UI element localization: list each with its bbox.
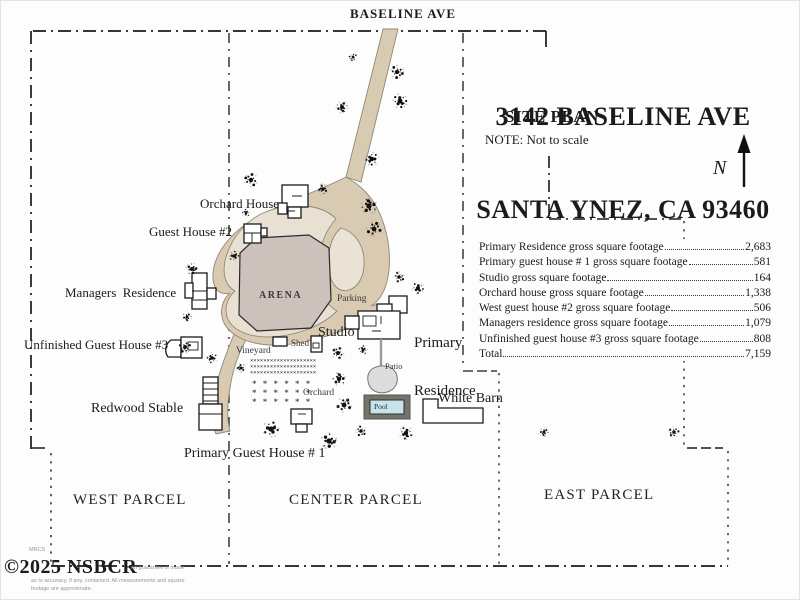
- studio-label: Studio: [318, 326, 355, 341]
- tree-icon: [336, 398, 352, 413]
- arena-area: [239, 235, 331, 331]
- dot-leader: [689, 254, 753, 265]
- row-value: 7,159: [745, 348, 771, 361]
- row-label: Studio gross square footage: [479, 272, 606, 285]
- table-row: Unfinished guest house #3 gross square f…: [479, 331, 771, 346]
- row-label: West guest house #2 gross square footage: [479, 302, 670, 315]
- row-value: 506: [754, 302, 771, 315]
- tree-icon: [244, 173, 257, 187]
- primary-residence-label: Primary Residence: [414, 303, 476, 431]
- watermark-brand: ©2025 NSBCR: [4, 557, 137, 578]
- tree-icon: [358, 345, 368, 354]
- street-label: BASELINE AVE: [350, 7, 456, 21]
- dot-leader: [669, 315, 744, 326]
- square-footage-table: Primary Residence gross square footage2,…: [479, 239, 771, 361]
- parking-label: Parking: [337, 295, 367, 305]
- row-label: Total: [479, 348, 502, 361]
- unfinished-guest-house-3-label: Unfinished Guest House #3: [24, 338, 168, 352]
- tree-icon: [349, 53, 357, 61]
- redwood-stable-label: Redwood Stable: [91, 402, 183, 417]
- table-row: Managers residence gross square footage1…: [479, 315, 771, 330]
- table-row: Studio gross square footage164: [479, 270, 771, 285]
- tree-icon: [236, 363, 246, 373]
- guest-house-2-label: Guest House #2: [149, 225, 232, 239]
- table-row: Primary guest house # 1 gross square foo…: [479, 254, 771, 269]
- row-label: Orchard house gross square footage: [479, 287, 644, 300]
- orchard-label: Orchard: [303, 389, 334, 399]
- row-label: Primary Residence gross square footage: [479, 241, 664, 254]
- scale-note: NOTE: Not to scale: [485, 133, 589, 147]
- tree-icon: [668, 426, 679, 437]
- shed-building: [273, 337, 287, 346]
- row-label: Unfinished guest house #3 gross square f…: [479, 333, 699, 346]
- tree-icon: [206, 352, 217, 363]
- west-parcel-label: WEST PARCEL: [73, 493, 187, 509]
- dot-leader: [607, 270, 752, 281]
- row-value: 164: [754, 272, 771, 285]
- managers-residence-building: [185, 273, 216, 309]
- table-row: West guest house #2 gross square footage…: [479, 300, 771, 315]
- tree-icon: [332, 372, 346, 385]
- row-value: 581: [754, 256, 771, 269]
- tree-icon: [263, 421, 279, 438]
- tree-icon: [539, 427, 549, 437]
- table-row: Orchard house gross square footage1,338: [479, 285, 771, 300]
- tree-icon: [336, 101, 349, 113]
- primary-guest-house-1-building: [291, 409, 312, 432]
- tree-icon: [355, 425, 366, 436]
- row-label: Primary guest house # 1 gross square foo…: [479, 256, 688, 269]
- title-address-line2: SANTA YNEZ, CA 93460: [469, 194, 777, 225]
- tree-icon: [392, 93, 407, 108]
- dot-leader: [645, 285, 744, 296]
- tree-icon: [393, 271, 404, 282]
- watermark-disclaimer-1: no guarantee is made: [131, 566, 184, 572]
- primary-guest-house-1-label: Primary Guest House # 1: [184, 447, 326, 462]
- row-value: 808: [754, 333, 771, 346]
- row-value: 1,079: [745, 317, 771, 330]
- watermark-disclaimer-2: as to accuracy, if any, contained. All m…: [31, 579, 185, 585]
- row-value: 1,338: [745, 287, 771, 300]
- row-label: Managers residence gross square footage: [479, 317, 668, 330]
- dot-leader: [503, 346, 744, 357]
- plan-title: SITE PLAN: [505, 108, 599, 126]
- shed-label: Shed: [291, 339, 309, 348]
- redwood-stable-building: [199, 377, 222, 430]
- vineyard-label: Vineyard: [236, 347, 271, 357]
- vegetation-row-marks: ××××××××××××××××××××: [250, 370, 316, 376]
- pool-label: Pool: [374, 403, 388, 411]
- tree-icon: [182, 312, 192, 322]
- dot-leader: [700, 331, 753, 342]
- table-row: Total7,159: [479, 346, 771, 361]
- managers-residence-label: Managers Residence: [65, 286, 176, 300]
- center-parcel-label: CENTER PARCEL: [289, 493, 423, 509]
- dot-leader: [665, 239, 745, 250]
- patio-label: Patio: [385, 362, 402, 371]
- table-row: Primary Residence gross square footage2,…: [479, 239, 771, 254]
- tree-icon: [400, 426, 413, 440]
- north-label: N: [713, 158, 726, 179]
- row-value: 2,683: [745, 241, 771, 254]
- dot-leader: [671, 300, 752, 311]
- orchard-house-label: Orchard House: [200, 197, 279, 211]
- tree-icon: [390, 65, 404, 79]
- east-parcel-label: EAST PARCEL: [544, 488, 654, 504]
- site-plan-page: ××××××××××××××××××××××××××××××××××××××××…: [0, 0, 800, 600]
- tree-icon: [332, 347, 344, 359]
- watermark-disclaimer-3: footage are approximate.: [31, 587, 92, 593]
- white-barn-label: White Barn: [438, 392, 503, 407]
- arena-label: ARENA: [259, 291, 302, 302]
- watermark-tiny-text: MRCS: [29, 548, 45, 554]
- tree-icon: [412, 282, 424, 294]
